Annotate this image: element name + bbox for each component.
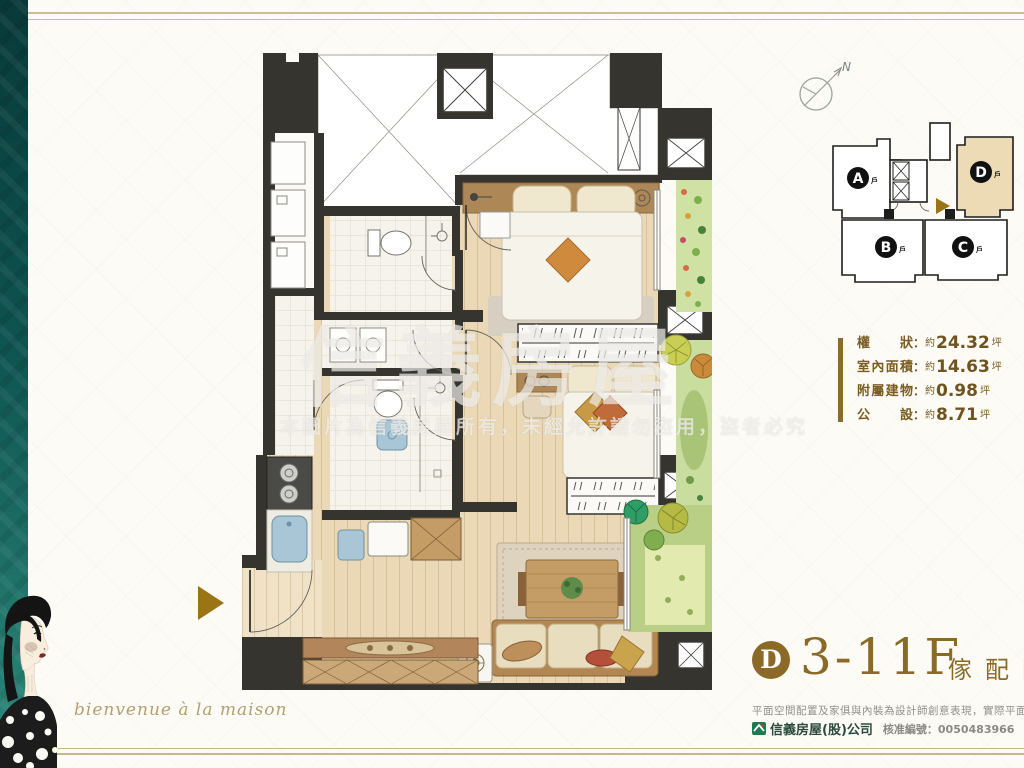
- desk-lamp: [470, 193, 478, 201]
- area-table: 權 狀：約24.32坪 室內面積：約14.63坪 附屬建物：約0.98坪 公 設…: [835, 334, 1024, 430]
- toilet-bowl: [381, 231, 411, 255]
- area-value: 8.71: [936, 405, 978, 425]
- svg-text:戶: 戶: [994, 170, 1001, 179]
- area-value: 24.32: [936, 333, 990, 353]
- area-value: 0.98: [936, 381, 978, 401]
- area-row: 附屬建物：約0.98坪: [857, 382, 1024, 399]
- stool: [523, 396, 551, 418]
- area-label: 公 設: [857, 407, 913, 424]
- unit-badge: D: [752, 641, 790, 679]
- svg-text:N: N: [842, 60, 851, 74]
- unit-floors-title: 3-11F: [800, 628, 962, 686]
- svg-text:D: D: [975, 165, 987, 181]
- svg-text:C: C: [958, 240, 968, 256]
- unit-type-label: 傢配圖: [948, 650, 1024, 685]
- area-row: 室內面積：約14.63坪: [857, 358, 1024, 375]
- washer: [271, 190, 305, 236]
- core-tower: [930, 123, 950, 160]
- area-value: 14.63: [936, 357, 990, 377]
- portrait-illustration: [0, 592, 60, 768]
- core-door-arcs: [889, 202, 929, 211]
- white-cabinet: [368, 522, 408, 556]
- entry-floor: [242, 560, 322, 650]
- kitchen: [267, 457, 312, 572]
- wall-notch: [286, 53, 299, 62]
- toilet-tank: [373, 380, 403, 390]
- svg-text:戶: 戶: [899, 245, 906, 254]
- page: 信義房屋 本圖片為信義房屋所有，未經允許請勿盜用，盜者必究 N: [0, 0, 1024, 768]
- company-row: 信義房屋(股)公司核准編號：0050483966: [752, 718, 1014, 734]
- area-row: 公 設：約8.71坪: [857, 406, 1024, 423]
- key-plan: A 戶 B 戶 C 戶 D 戶: [820, 115, 1020, 290]
- kitchen-tile: [275, 296, 314, 455]
- dryer: [271, 242, 305, 288]
- planter-strip-north: [676, 180, 712, 312]
- wardrobe-1: [518, 324, 658, 362]
- tree: [644, 530, 664, 550]
- garden-south: [624, 500, 712, 632]
- sink: [377, 420, 407, 450]
- toilet-tank: [368, 230, 380, 256]
- toilet-bowl: [374, 391, 402, 417]
- area-row: 權 狀：約24.32坪: [857, 334, 1024, 351]
- top-gold-rule: [28, 12, 1024, 20]
- area-label: 室內面積: [857, 359, 913, 376]
- sinyi-logo-icon: [752, 722, 766, 735]
- svg-text:B: B: [881, 240, 892, 256]
- hair-back: [4, 634, 18, 702]
- tree: [691, 354, 712, 378]
- approval-number: 核准編號：0050483966: [883, 723, 1015, 736]
- basin: [338, 530, 364, 560]
- area-label: 權 狀: [857, 335, 913, 352]
- entrance-arrow-icon: [198, 586, 224, 620]
- tagline-text: bienvenue à la maison: [74, 700, 287, 720]
- bottom-gold-rule: [0, 748, 1024, 755]
- utility-closet: [271, 133, 314, 288]
- disclaimer-text: 平面空間配置及家俱與內裝為設計師創意表現，實際平面、屋況與坪數以: [752, 703, 1024, 718]
- bath-a-floor: [330, 216, 452, 312]
- company-name: 信義房屋(股)公司: [770, 723, 873, 738]
- tv-console: [303, 638, 478, 684]
- svg-text:戶: 戶: [976, 245, 983, 254]
- floor-plan: [230, 40, 712, 690]
- bench: [480, 212, 510, 238]
- svg-text:戶: 戶: [871, 176, 878, 185]
- svg-text:A: A: [853, 171, 864, 187]
- compass-icon: N: [790, 58, 854, 120]
- area-label: 附屬建物: [857, 383, 913, 400]
